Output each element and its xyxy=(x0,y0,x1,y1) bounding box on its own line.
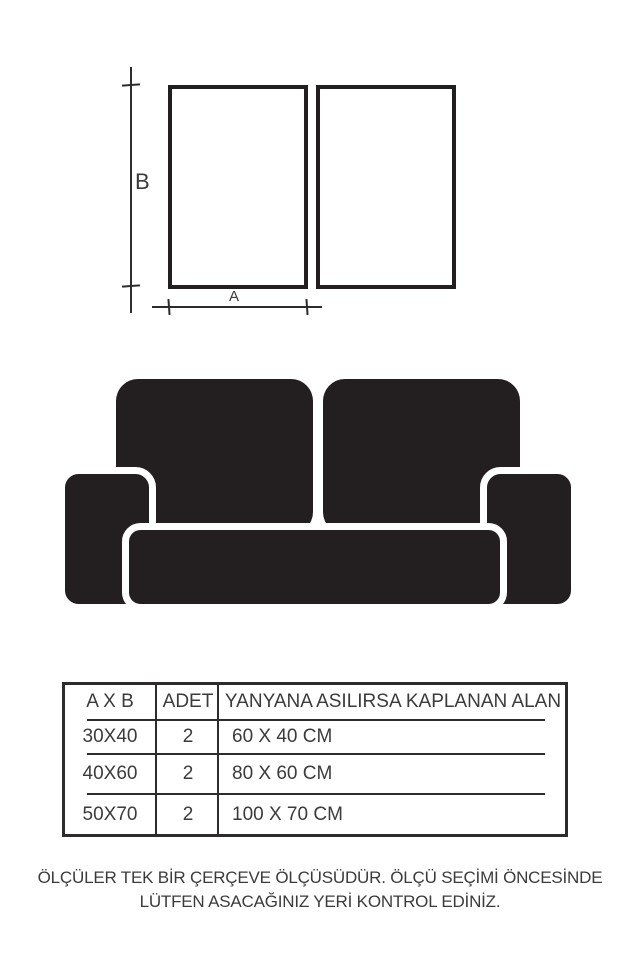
dimension-label-b: B xyxy=(135,169,150,195)
frame-rectangle-right xyxy=(316,85,456,289)
table-header-adet: ADET xyxy=(157,685,219,719)
table-header-row: A X B ADET YANYANA ASILIRSA KAPLANAN ALA… xyxy=(65,685,565,719)
size-guide-image: B A A X B ADET YANYANA ASILIRSA KAPLANAN… xyxy=(0,0,640,960)
sofa-icon xyxy=(58,378,578,612)
table-cell-size: 50X70 xyxy=(65,795,155,834)
dimension-line-a xyxy=(152,306,322,308)
dimension-line-b xyxy=(130,67,132,313)
table-cell-coverage: 80 X 60 CM xyxy=(221,755,565,793)
table-cell-coverage: 100 X 70 CM xyxy=(221,795,565,834)
table-cell-quantity: 2 xyxy=(157,795,219,834)
frame-rectangle-left xyxy=(168,85,308,289)
footer-note-line-1: ÖLÇÜLER TEK BİR ÇERÇEVE ÖLÇÜSÜDÜR. ÖLÇÜ … xyxy=(0,866,640,890)
table-row: 40X60 2 80 X 60 CM xyxy=(65,755,565,793)
table-cell-quantity: 2 xyxy=(157,755,219,793)
table-header-coverage: YANYANA ASILIRSA KAPLANAN ALAN xyxy=(221,685,565,719)
table-cell-coverage: 60 X 40 CM xyxy=(221,721,565,753)
table-cell-size: 30X40 xyxy=(65,721,155,753)
table-row: 50X70 2 100 X 70 CM xyxy=(65,795,565,834)
table-cell-quantity: 2 xyxy=(157,721,219,753)
dimension-label-a: A xyxy=(214,288,254,305)
table-row: 30X40 2 60 X 40 CM xyxy=(65,721,565,753)
footer-note: ÖLÇÜLER TEK BİR ÇERÇEVE ÖLÇÜSÜDÜR. ÖLÇÜ … xyxy=(0,866,640,914)
table-header-axb: A X B xyxy=(65,685,155,719)
sofa-seat-shape xyxy=(126,527,504,608)
size-table: A X B ADET YANYANA ASILIRSA KAPLANAN ALA… xyxy=(62,682,568,837)
footer-note-line-2: LÜTFEN ASACAĞINIZ YERİ KONTROL EDİNİZ. xyxy=(0,890,640,914)
table-cell-size: 40X60 xyxy=(65,755,155,793)
